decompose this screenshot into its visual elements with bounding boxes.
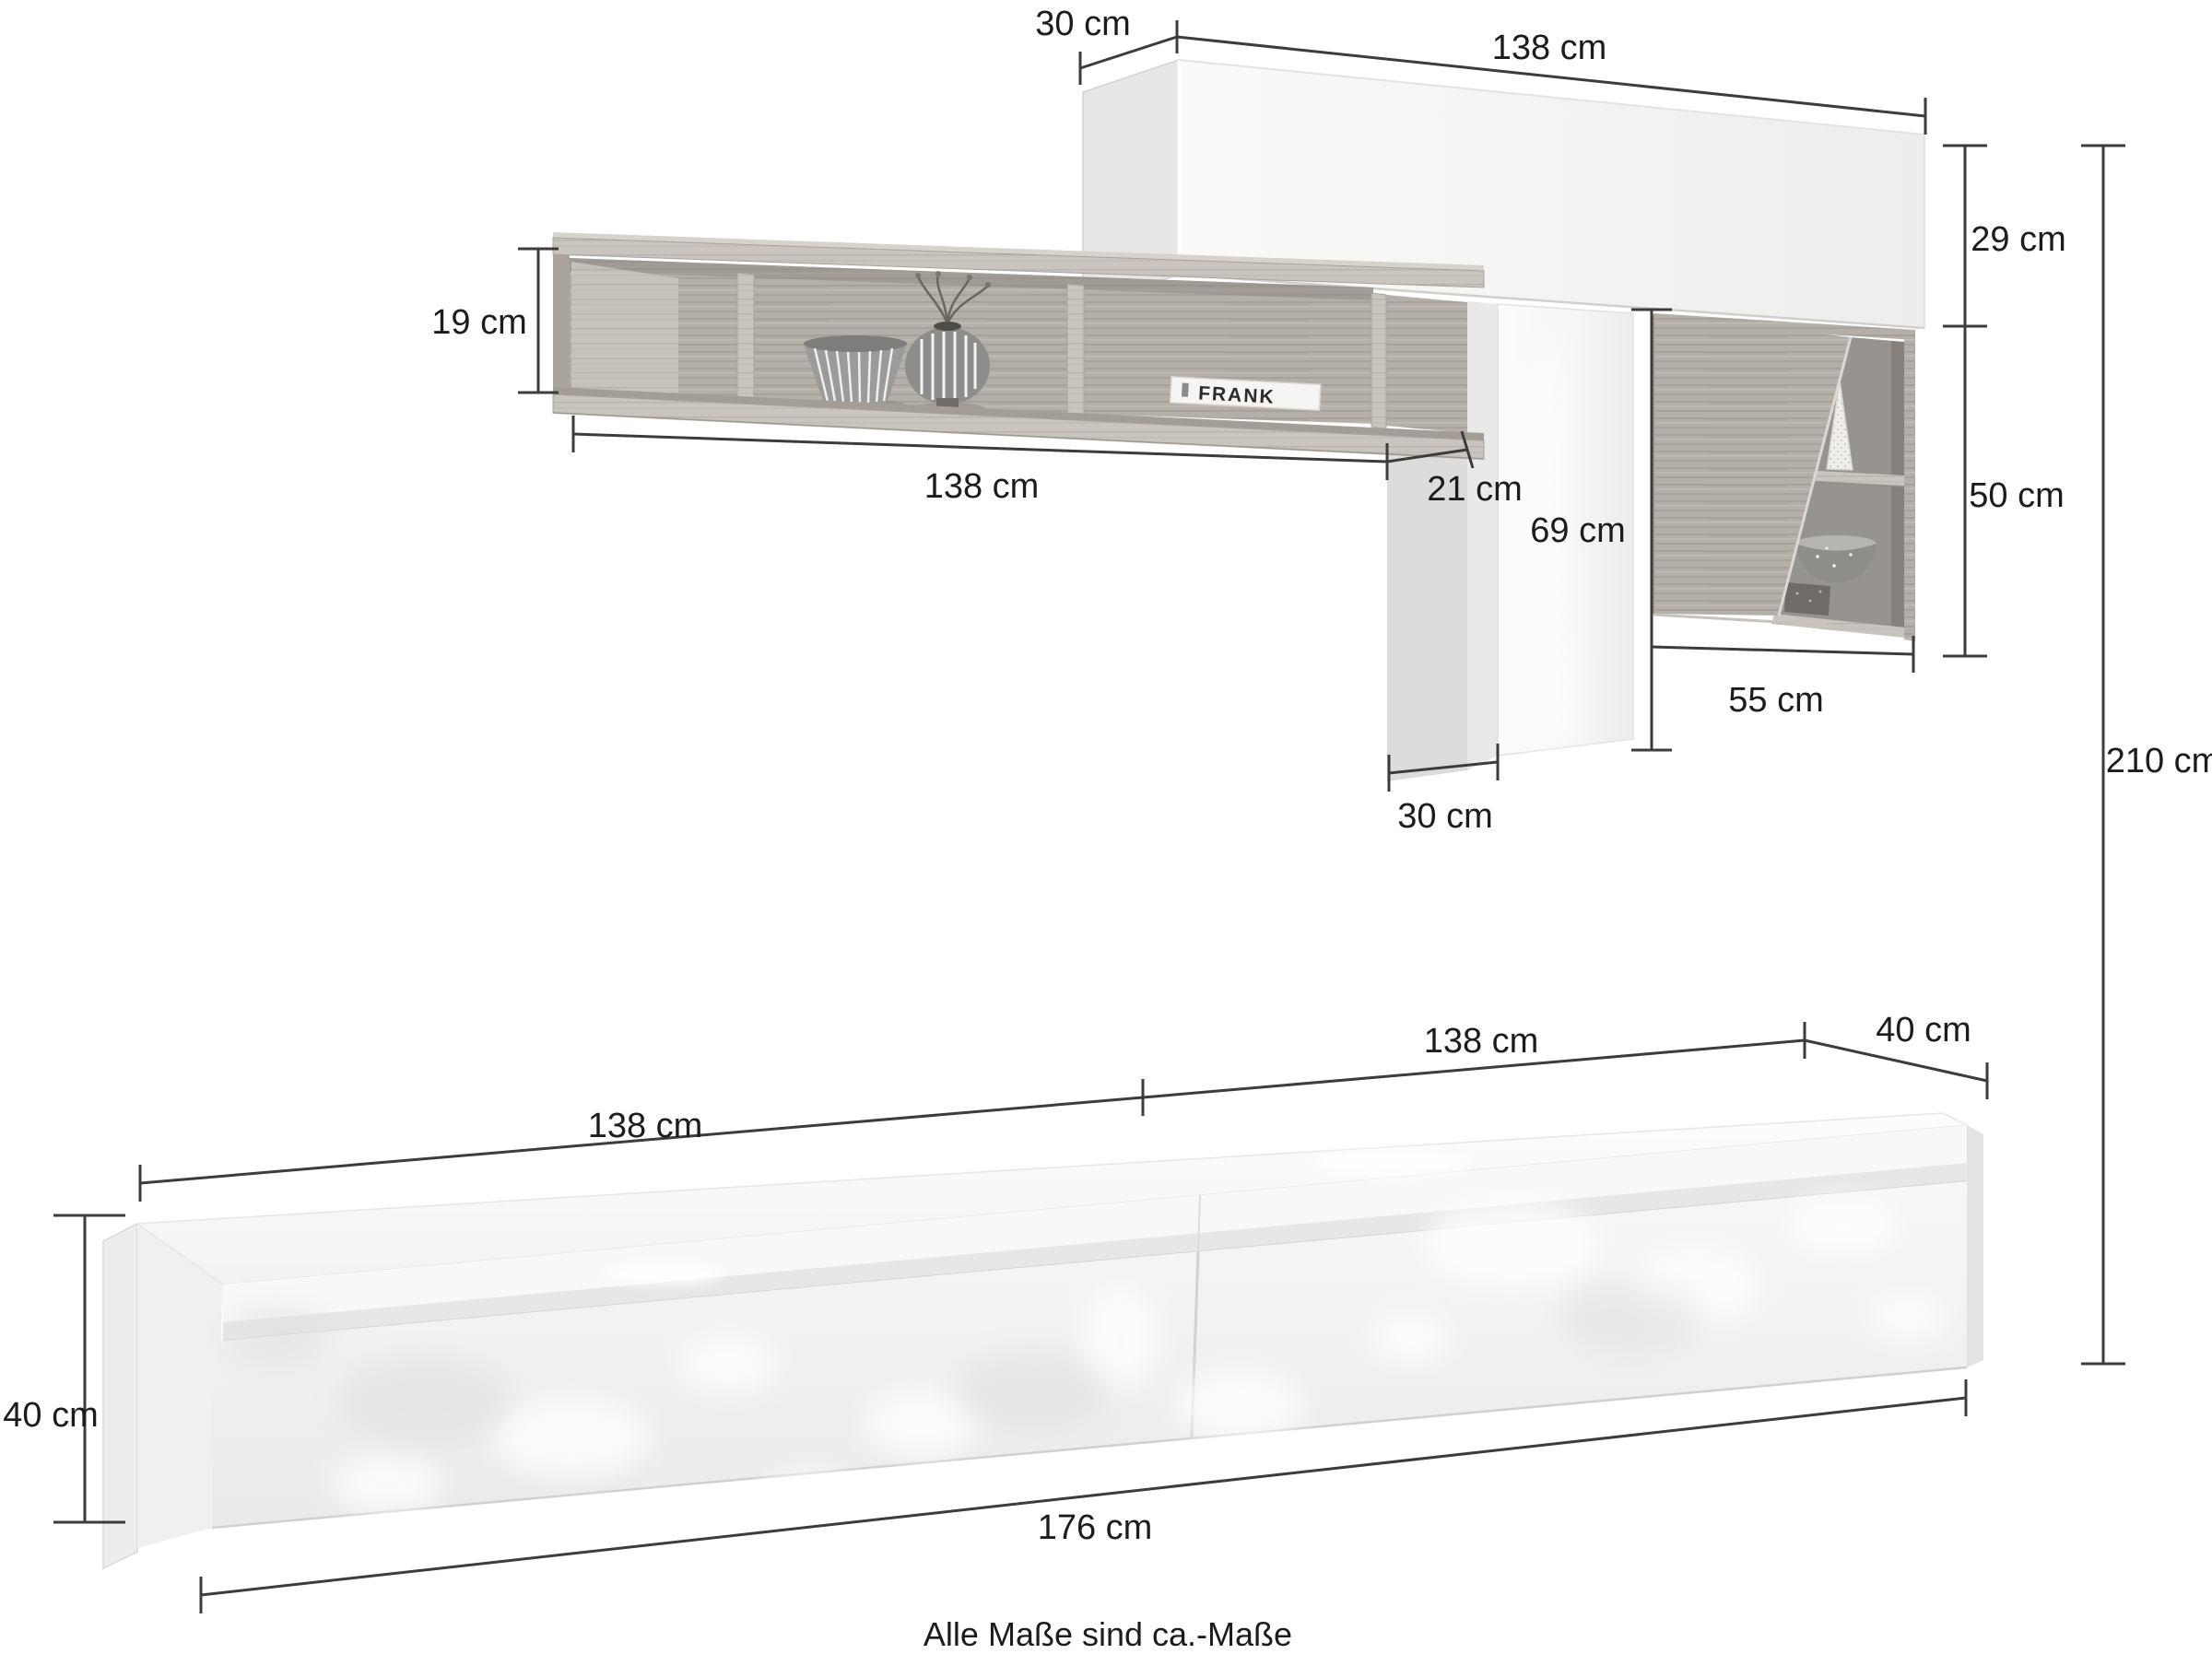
shelf-left-side <box>553 238 570 413</box>
dim-label-total-height: 210 cm <box>2106 742 2212 780</box>
dim-label-lowboard-right: 138 cm <box>1424 1022 1539 1061</box>
dim-label-upper-depth: 30 cm <box>1035 5 1130 43</box>
book-spine-text: FRANK <box>1198 382 1277 407</box>
dim-label-cabinet-width: 55 cm <box>1728 681 1823 720</box>
dim-label-shelf-width: 138 cm <box>924 467 1040 506</box>
top-wall-unit: FRANK <box>553 60 1924 781</box>
decor-box <box>1784 582 1830 616</box>
shelf-divider-2 <box>1067 284 1084 424</box>
display-cabinet <box>1653 313 1915 641</box>
dim-label-lowboard-total: 176 cm <box>1038 1508 1153 1547</box>
shelf-inner-left-wall <box>571 262 678 398</box>
panel-edge-face <box>1467 301 1498 770</box>
dim-label-upper-width: 138 cm <box>1492 29 1607 67</box>
dim-label-panel-height: 69 cm <box>1530 511 1625 550</box>
dim-label-lowboard-height: 40 cm <box>3 1396 98 1435</box>
dim-label-lowboard-left: 138 cm <box>588 1107 703 1145</box>
dim-label-shelf-height: 19 cm <box>431 303 526 342</box>
caption: Alle Maße sind ca.-Maße <box>924 1615 1292 1653</box>
shelf-divider-1 <box>737 273 754 411</box>
dim-label-lowboard-depth: 40 cm <box>1876 1011 1971 1050</box>
display-cabinet-right-frame <box>1904 339 1915 641</box>
shelf-right-side <box>1371 293 1386 429</box>
lowboard-left-side <box>103 1224 137 1568</box>
dim-label-panel-depth: 30 cm <box>1397 797 1492 836</box>
furniture-dimension-diagram: FRANK <box>0 0 2212 1654</box>
diagram-canvas: FRANK <box>0 0 2212 1654</box>
lowboard-right-side <box>1967 1125 1983 1367</box>
dim-label-lower-height: 50 cm <box>1969 476 2064 515</box>
lowboard <box>103 1093 1983 1568</box>
dim-label-upper-height: 29 cm <box>1971 220 2065 259</box>
panel-back-wood <box>1386 295 1467 433</box>
dim-line-cabinet-width <box>1652 628 1913 673</box>
dim-label-shelf-overhang: 21 cm <box>1427 470 1522 509</box>
wall-shelf: FRANK <box>553 232 1484 459</box>
